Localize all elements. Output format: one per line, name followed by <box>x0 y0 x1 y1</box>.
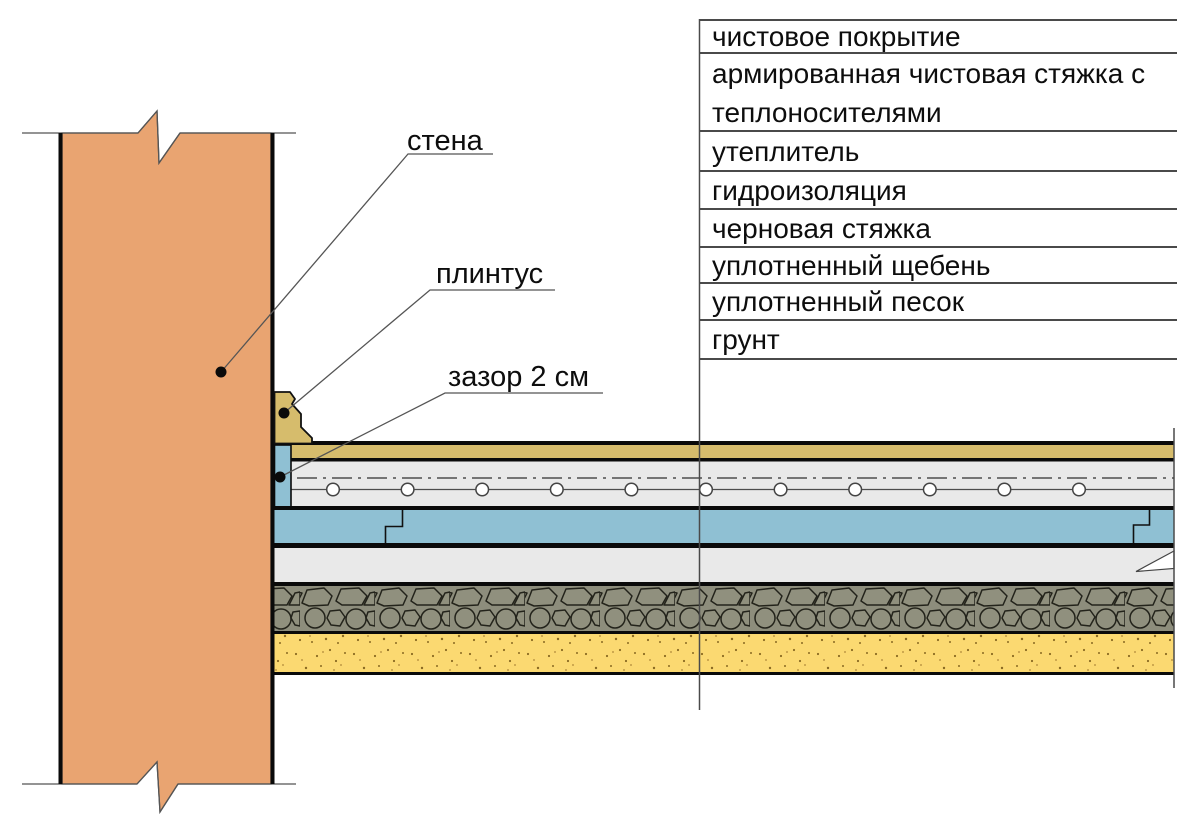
legend-row-soil: грунт <box>699 321 1177 360</box>
legend-row-reinforced-screed: армированная чистовая стяжка с теплоноси… <box>699 54 1177 132</box>
crushed-stone-bottom-line <box>275 631 1175 634</box>
legend-item-label: утеплитель <box>712 136 859 167</box>
legend-row-waterproofing: гидроизоляция <box>699 172 1177 210</box>
legend-row-finish-coating: чистовое покрытие <box>699 21 1177 54</box>
compacted-sand-bottom-line <box>275 672 1175 675</box>
layer-rough-screed <box>275 548 1175 582</box>
layer-insulation <box>275 510 1175 543</box>
legend-item-label: грунт <box>712 324 780 355</box>
plinth-callout-label: плинтус <box>436 258 543 291</box>
wall-callout-label: стена <box>407 125 483 158</box>
legend-row-rough-screed: черновая стяжка <box>699 210 1177 248</box>
rough-screed-bottom-line <box>275 582 1175 586</box>
finish-coating-top-line <box>275 441 1175 445</box>
finish-coating-bottom-line <box>291 458 1174 462</box>
wall-callout-dot <box>216 367 227 378</box>
wall-fill <box>62 111 271 812</box>
screed-bottom-line <box>275 506 1175 510</box>
legend-item-label: уплотненный песок <box>712 286 964 317</box>
legend-item-label: гидроизоляция <box>712 175 907 206</box>
legend-item-label: черновая стяжка <box>712 213 931 244</box>
legend-item-label: чистовое покрытие <box>712 21 961 52</box>
layer-compacted-sand <box>275 634 1175 672</box>
floor-construction-diagram: чистовое покрытие армированная чистовая … <box>0 0 1200 834</box>
plinth-callout-leader <box>284 290 555 413</box>
layer-waterproofing <box>275 543 1175 548</box>
layer-crushed-stone <box>275 586 1175 631</box>
legend-item-label: армированная чистовая стяжка с теплоноси… <box>712 58 1145 128</box>
gap-callout-dot <box>275 472 286 483</box>
wall-left-edge <box>59 133 63 784</box>
legend-table: чистовое покрытие армированная чистовая … <box>699 19 1177 360</box>
legend-row-compacted-sand: уплотненный песок <box>699 284 1177 321</box>
layer-finish-coating <box>291 445 1174 458</box>
legend-item-label: уплотненный щебень <box>712 250 990 281</box>
plinth-callout-dot <box>279 408 290 419</box>
plinth-shape <box>275 392 313 444</box>
layer-reinforced-screed <box>291 462 1174 507</box>
legend-row-crushed-stone: уплотненный щебень <box>699 248 1177 284</box>
legend-row-insulation: утеплитель <box>699 132 1177 172</box>
gap-callout-label: зазор 2 см <box>448 361 589 394</box>
